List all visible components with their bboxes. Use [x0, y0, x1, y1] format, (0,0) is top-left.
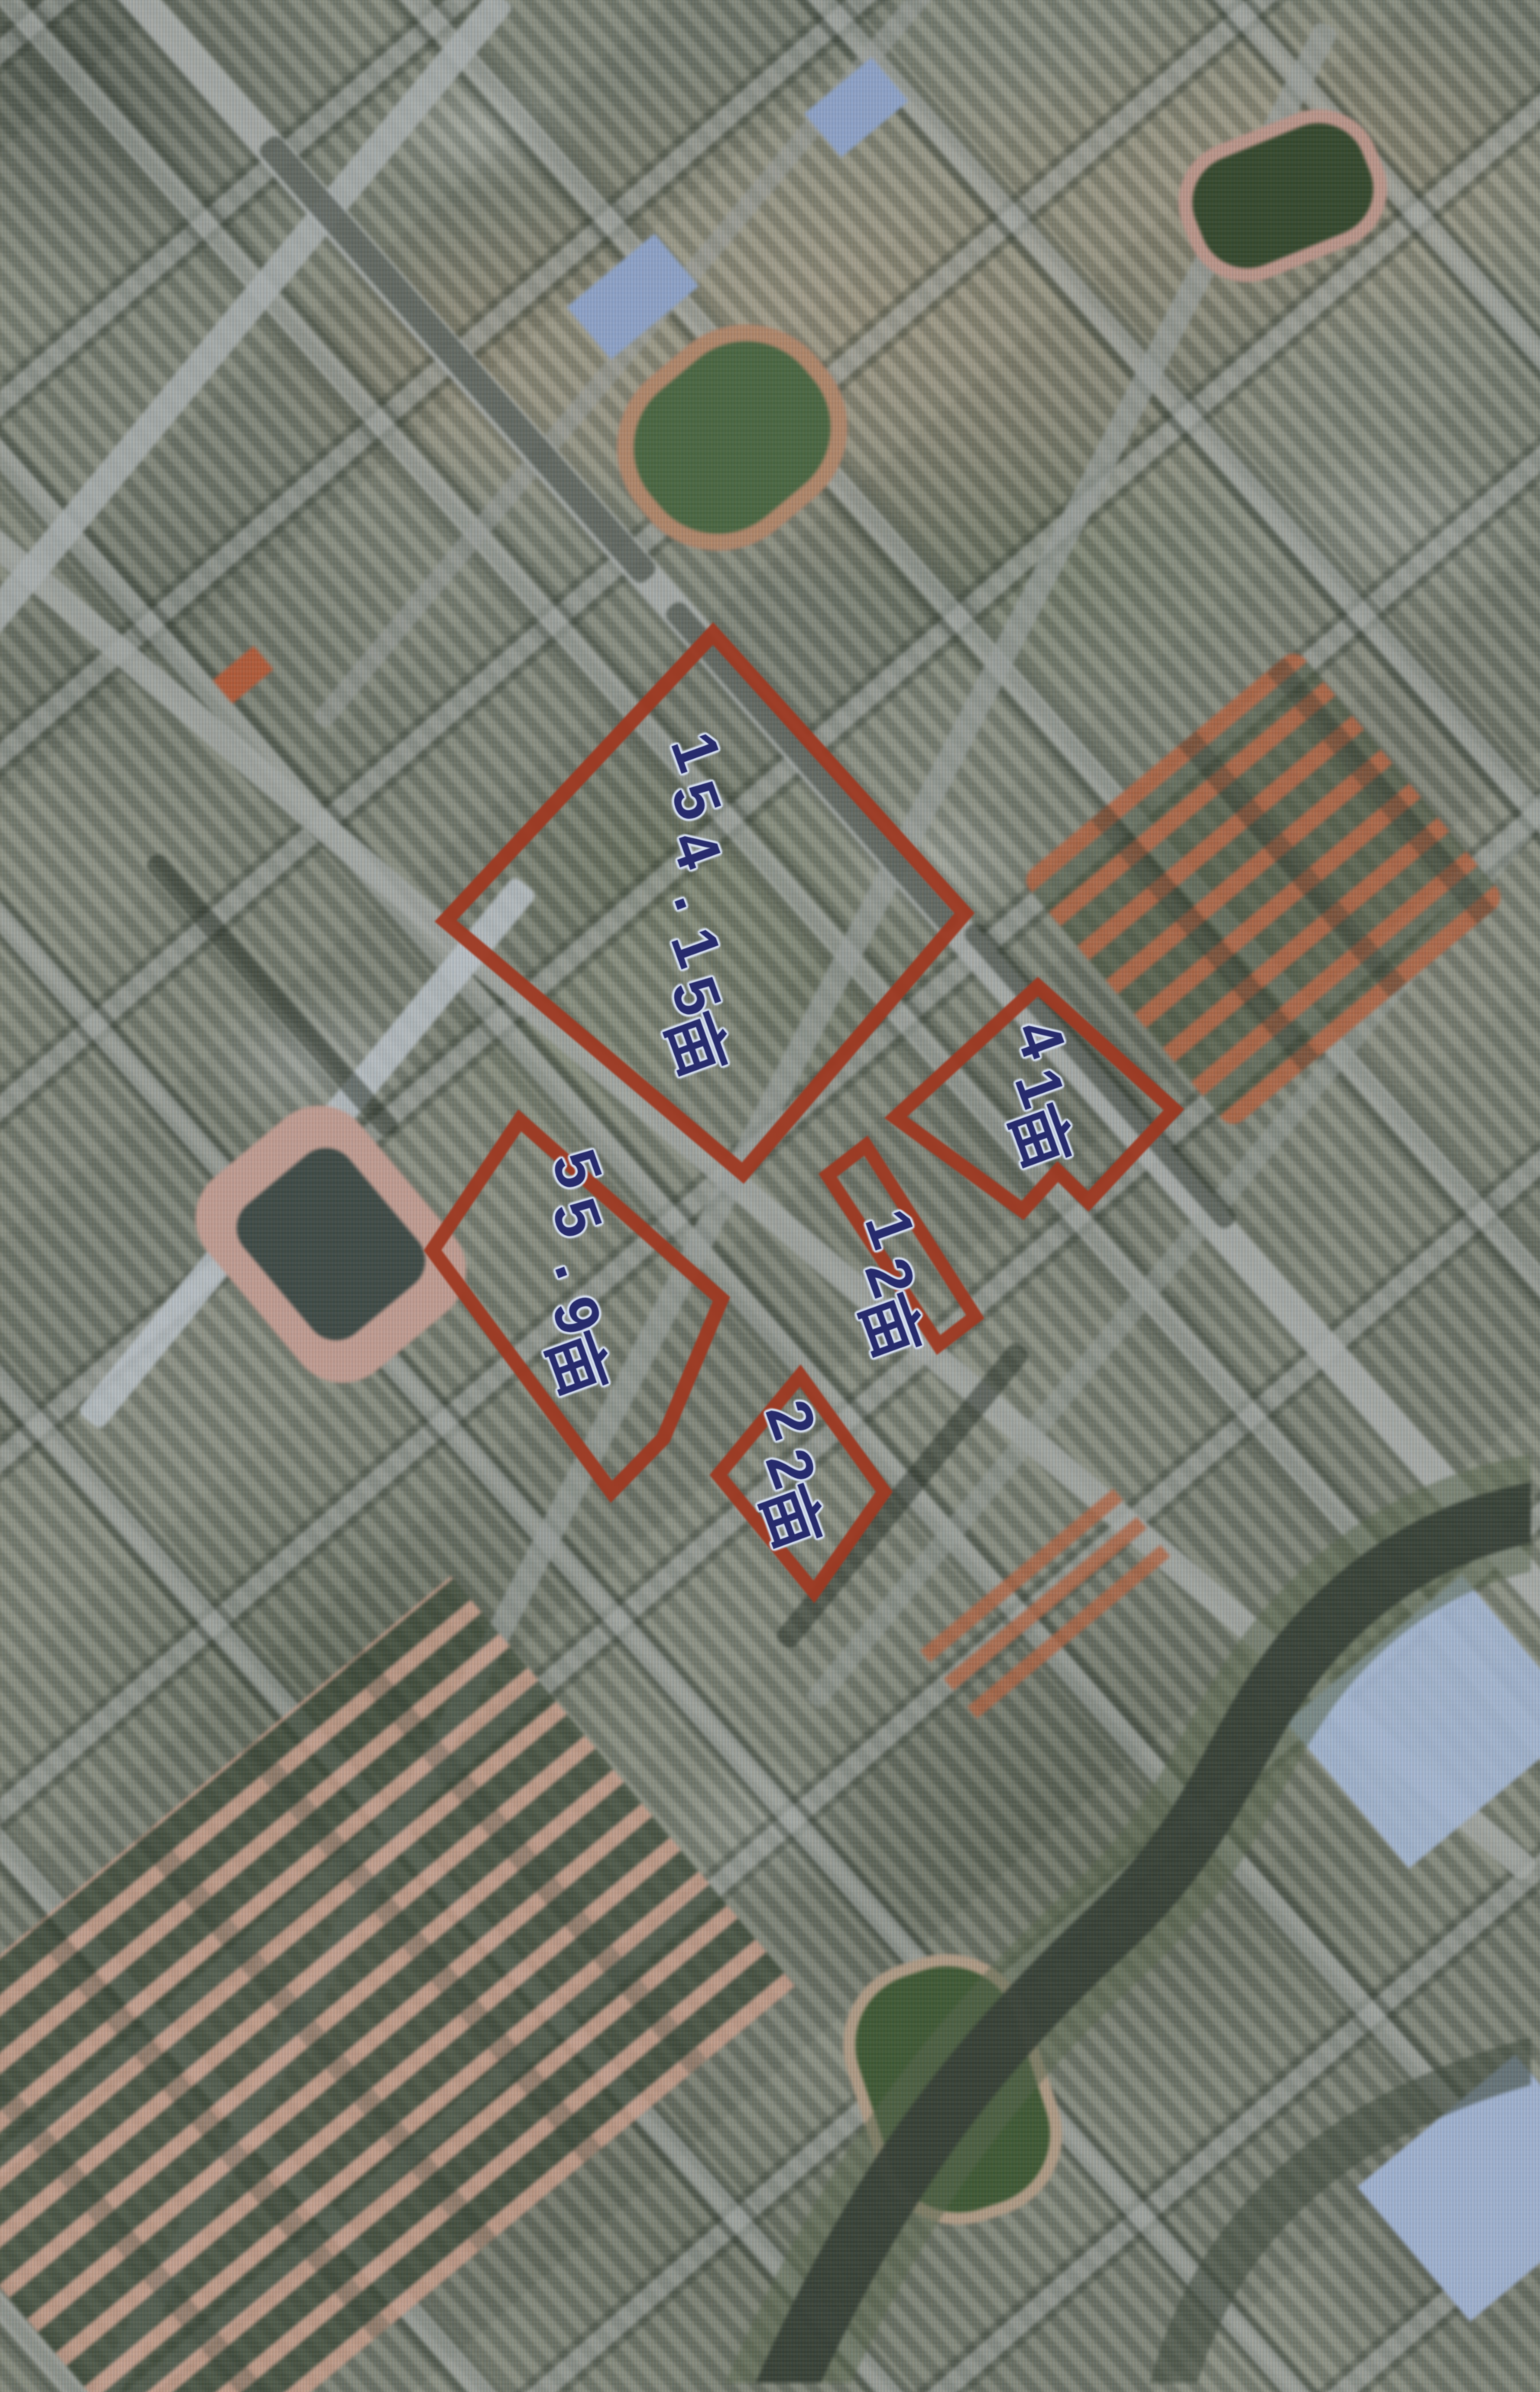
parcel-label-22: 22亩 — [758, 1395, 822, 1542]
parcel-label-55: 55.9亩 — [544, 1145, 608, 1389]
parcel-label-41: 41亩 — [1007, 1015, 1072, 1162]
satellite-map-screenshot: 154.15亩 41亩 12亩 22亩 55.9亩 — [0, 0, 1540, 2392]
parcel-outlines-layer — [0, 0, 1540, 2392]
parcel-label-154: 154.15亩 — [663, 728, 728, 1070]
parcel-label-12: 12亩 — [858, 1204, 922, 1351]
